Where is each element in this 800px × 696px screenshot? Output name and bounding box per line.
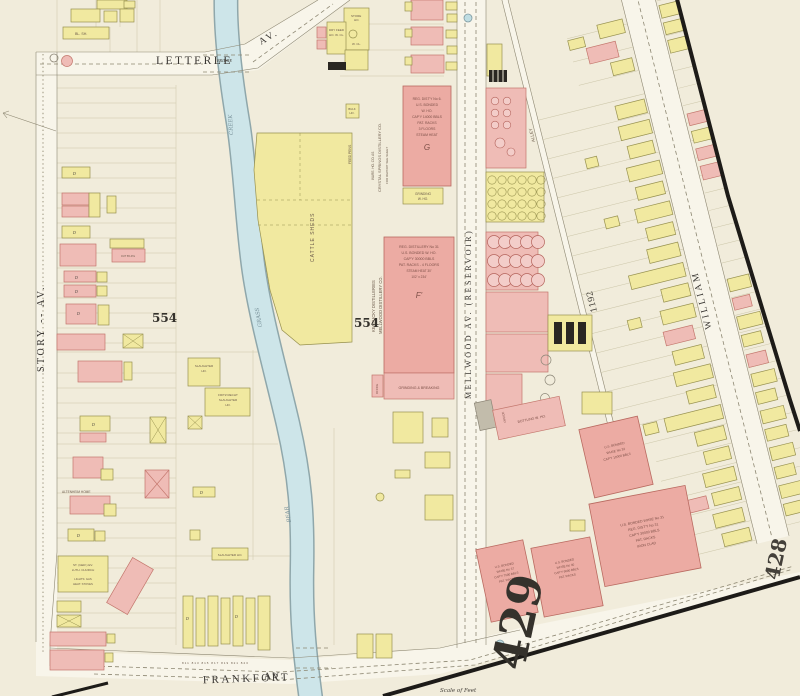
svg-text:STEAM HEAT 30': STEAM HEAT 30' [406,269,432,273]
svg-text:PAT. RACKS - 4 FLOORS: PAT. RACKS - 4 FLOORS [399,263,440,267]
svg-text:HO. W. CL.: HO. W. CL. [329,33,344,37]
svg-text:REG. DIST'Y No 6.: REG. DIST'Y No 6. [413,97,442,101]
x-stable-3 [145,470,169,498]
svg-text:W. HO.: W. HO. [422,109,433,113]
bridge-label: BRIDGE [217,58,233,63]
svg-text:PAT. RACKS: PAT. RACKS [417,121,437,125]
crystal-springs-note-2: CRYSTAL SPRINGS DISTILLERY CO. [377,123,382,192]
svg-text:D: D [72,172,76,176]
house-numbers-row: 811 813 815 817 819 821 823 [182,661,249,665]
bonded-warehouse-big [589,485,701,586]
altenheim-label: ALTENHEIM HOME [62,490,90,494]
svg-text:HO.: HO. [350,111,355,115]
cattle-sheds-label: CATTLE SHEDS [310,213,316,262]
svg-text:W. CL.: W. CL. [352,42,361,46]
svg-text:D: D [234,615,238,619]
x-stable-1 [123,334,143,348]
svg-text:FRITZ RECHT: FRITZ RECHT [218,393,238,397]
svg-text:D: D [76,534,80,538]
mellwood-av-label: MELLWOOD AV. (RESERVOIR) [464,229,473,399]
block-number-554-east: 554 [354,316,379,330]
svg-text:W. HO.: W. HO. [418,197,428,201]
svg-text:OUT B'LD'G: OUT B'LD'G [121,254,135,258]
svg-text:REG. DISTILLERY No 31: REG. DISTILLERY No 31 [399,245,439,249]
x-stable-2 [150,417,166,443]
stack-2 [566,322,574,344]
stack-1 [554,322,562,344]
x-stable-5 [57,615,81,627]
sanborn-map-page: WILLIAM ALLEY 1192 BL. SH. [0,0,800,696]
creek-label-upper: CREEK [228,114,235,136]
x-stable-4 [188,416,202,429]
svg-text:SLAUGHTER: SLAUGHTER [219,398,238,402]
svg-text:G: G [424,143,430,152]
svg-text:F': F' [416,291,423,300]
svg-text:SLAUGHTER: SLAUGHTER [195,364,214,368]
svg-text:D: D [185,617,189,621]
feed-pens-label: FEED PENS [348,144,352,164]
svg-text:SLAUGHTER HO.: SLAUGHTER HO. [218,553,243,557]
svg-text:LUTH. CHURCH: LUTH. CHURCH [72,568,95,572]
svg-text:D: D [74,290,78,294]
svg-text:GRINDING: GRINDING [415,192,431,196]
crystal-springs-note-3: FOR REPORT SEE SHEET [385,147,389,184]
svg-text:D: D [199,491,203,495]
malt-house [486,172,544,222]
small-tank [376,493,384,501]
svg-text:U.S. BONDED W. HO.: U.S. BONDED W. HO. [401,251,436,255]
scale-of-feet-note: Scale of Feet [440,688,477,694]
svg-text:HEAT: STOVES: HEAT: STOVES [73,582,93,586]
pink-tank [62,56,73,67]
svg-text:D: D [72,231,76,235]
grinding-breaking-label: GRINDING & BREAKING [399,386,440,390]
block-number-554-west: 554 [152,311,177,325]
svg-text:3 FLOORS: 3 FLOORS [419,127,437,131]
lutheran-church [58,556,108,592]
svg-text:ST. (GER.) EV.: ST. (GER.) EV. [73,563,93,567]
coal-pile [328,62,346,70]
stack-3 [578,322,586,344]
svg-text:U.S. BONDED: U.S. BONDED [416,103,439,107]
office-label-1: OFFICE [375,384,379,394]
svg-text:CAP'Y 14000 BBLS: CAP'Y 14000 BBLS [412,115,443,119]
sanborn-map: WILLIAM ALLEY 1192 BL. SH. [0,0,800,696]
svg-text:HO.: HO. [225,403,231,407]
grinding-warehouse [403,188,443,204]
svg-text:D: D [74,276,78,280]
svg-text:D: D [91,423,95,427]
svg-text:HO.: HO. [201,369,207,373]
story-av-label: STORY -- AV. [36,285,47,372]
blacksmith-label: BL. SH. [75,32,87,36]
svg-text:STEAM HEAT: STEAM HEAT [416,133,437,137]
crystal-springs-note-1: WARE. HO. CO. AS [371,152,375,180]
svg-text:CAP'Y 30000 BBLS: CAP'Y 30000 BBLS [404,257,435,261]
svg-text:102' x 234': 102' x 234' [411,275,427,279]
svg-text:HO.: HO. [354,18,360,22]
cistern-circle-top [464,14,472,22]
svg-text:LIGHTS: GAS: LIGHTS: GAS [74,577,92,581]
svg-text:D: D [76,312,80,316]
svg-text:DRY FEED: DRY FEED [329,28,345,32]
frankfort-av-label: AV. [264,670,286,682]
